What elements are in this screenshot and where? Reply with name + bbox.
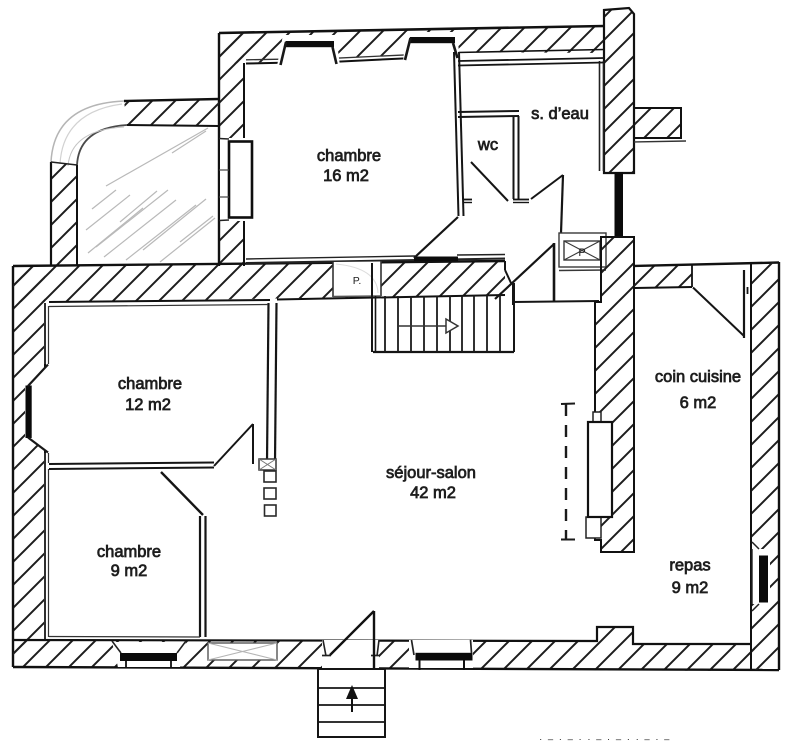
svg-text:wc: wc <box>477 136 498 154</box>
svg-text:chambre: chambre <box>317 147 381 165</box>
svg-text:s. d’eau: s. d’eau <box>531 105 589 123</box>
svg-text:chambre: chambre <box>118 375 182 393</box>
svg-text:42 m2: 42 m2 <box>410 484 456 502</box>
svg-text:P: P <box>578 247 585 259</box>
svg-text:16 m2: 16 m2 <box>323 167 369 185</box>
svg-text:9 m2: 9 m2 <box>111 562 148 580</box>
svg-text:· – · – · · – · – · · – · –: · – · – · · – · – · · – · – <box>539 734 671 745</box>
svg-text:9 m2: 9 m2 <box>672 579 709 597</box>
svg-text:repas: repas <box>669 557 710 575</box>
svg-text:12 m2: 12 m2 <box>125 396 171 414</box>
svg-text:coin cuisine: coin cuisine <box>655 368 741 386</box>
svg-text:chambre: chambre <box>97 543 161 561</box>
svg-text:P.: P. <box>353 275 362 287</box>
svg-text:6 m2: 6 m2 <box>680 394 717 412</box>
svg-text:séjour-salon: séjour-salon <box>386 464 476 482</box>
